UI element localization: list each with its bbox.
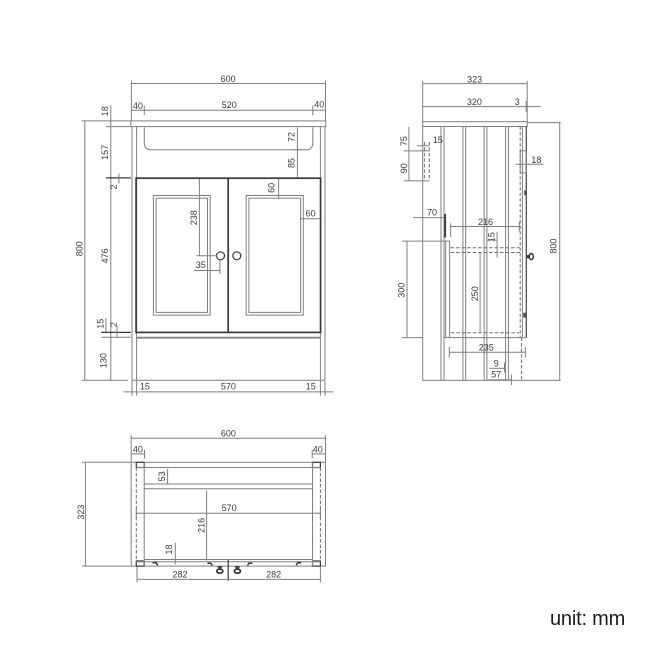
svg-text:15: 15 — [433, 135, 443, 145]
svg-text:72: 72 — [286, 132, 296, 142]
svg-text:300: 300 — [397, 283, 407, 298]
svg-text:53: 53 — [157, 471, 167, 481]
svg-text:40: 40 — [133, 445, 143, 455]
svg-text:216: 216 — [478, 217, 493, 227]
svg-text:9: 9 — [494, 359, 499, 369]
svg-text:216: 216 — [196, 518, 206, 533]
svg-text:282: 282 — [266, 570, 281, 580]
svg-text:15: 15 — [306, 381, 316, 391]
svg-text:320: 320 — [467, 97, 482, 107]
svg-text:40: 40 — [313, 445, 323, 455]
svg-text:3: 3 — [515, 97, 520, 107]
svg-text:15: 15 — [96, 319, 106, 329]
svg-text:800: 800 — [549, 239, 559, 254]
svg-text:75: 75 — [399, 136, 409, 146]
svg-text:60: 60 — [306, 209, 316, 219]
svg-text:40: 40 — [314, 99, 324, 109]
svg-text:2: 2 — [109, 184, 119, 189]
svg-text:15: 15 — [486, 232, 496, 242]
svg-text:323: 323 — [76, 505, 86, 520]
svg-text:18: 18 — [100, 106, 110, 116]
svg-text:235: 235 — [479, 342, 494, 352]
svg-text:570: 570 — [222, 503, 237, 513]
svg-text:unit: mm: unit: mm — [550, 608, 625, 630]
svg-text:600: 600 — [221, 74, 236, 84]
svg-text:130: 130 — [98, 353, 108, 368]
svg-text:600: 600 — [221, 428, 236, 438]
svg-text:157: 157 — [100, 145, 110, 160]
svg-text:323: 323 — [467, 74, 482, 84]
svg-text:15: 15 — [140, 381, 150, 391]
svg-text:800: 800 — [75, 241, 85, 256]
svg-text:282: 282 — [172, 570, 187, 580]
svg-text:520: 520 — [222, 100, 237, 110]
svg-text:60: 60 — [267, 183, 277, 193]
svg-text:18: 18 — [531, 155, 541, 165]
svg-text:85: 85 — [287, 158, 297, 168]
svg-text:18: 18 — [164, 544, 174, 554]
svg-text:476: 476 — [100, 248, 110, 263]
svg-text:90: 90 — [399, 163, 409, 173]
svg-text:57: 57 — [491, 370, 501, 380]
svg-text:250: 250 — [470, 286, 480, 301]
svg-text:35: 35 — [196, 260, 206, 270]
svg-text:238: 238 — [189, 210, 199, 225]
svg-text:70: 70 — [427, 208, 437, 218]
svg-text:570: 570 — [221, 382, 236, 392]
svg-text:40: 40 — [133, 101, 143, 111]
